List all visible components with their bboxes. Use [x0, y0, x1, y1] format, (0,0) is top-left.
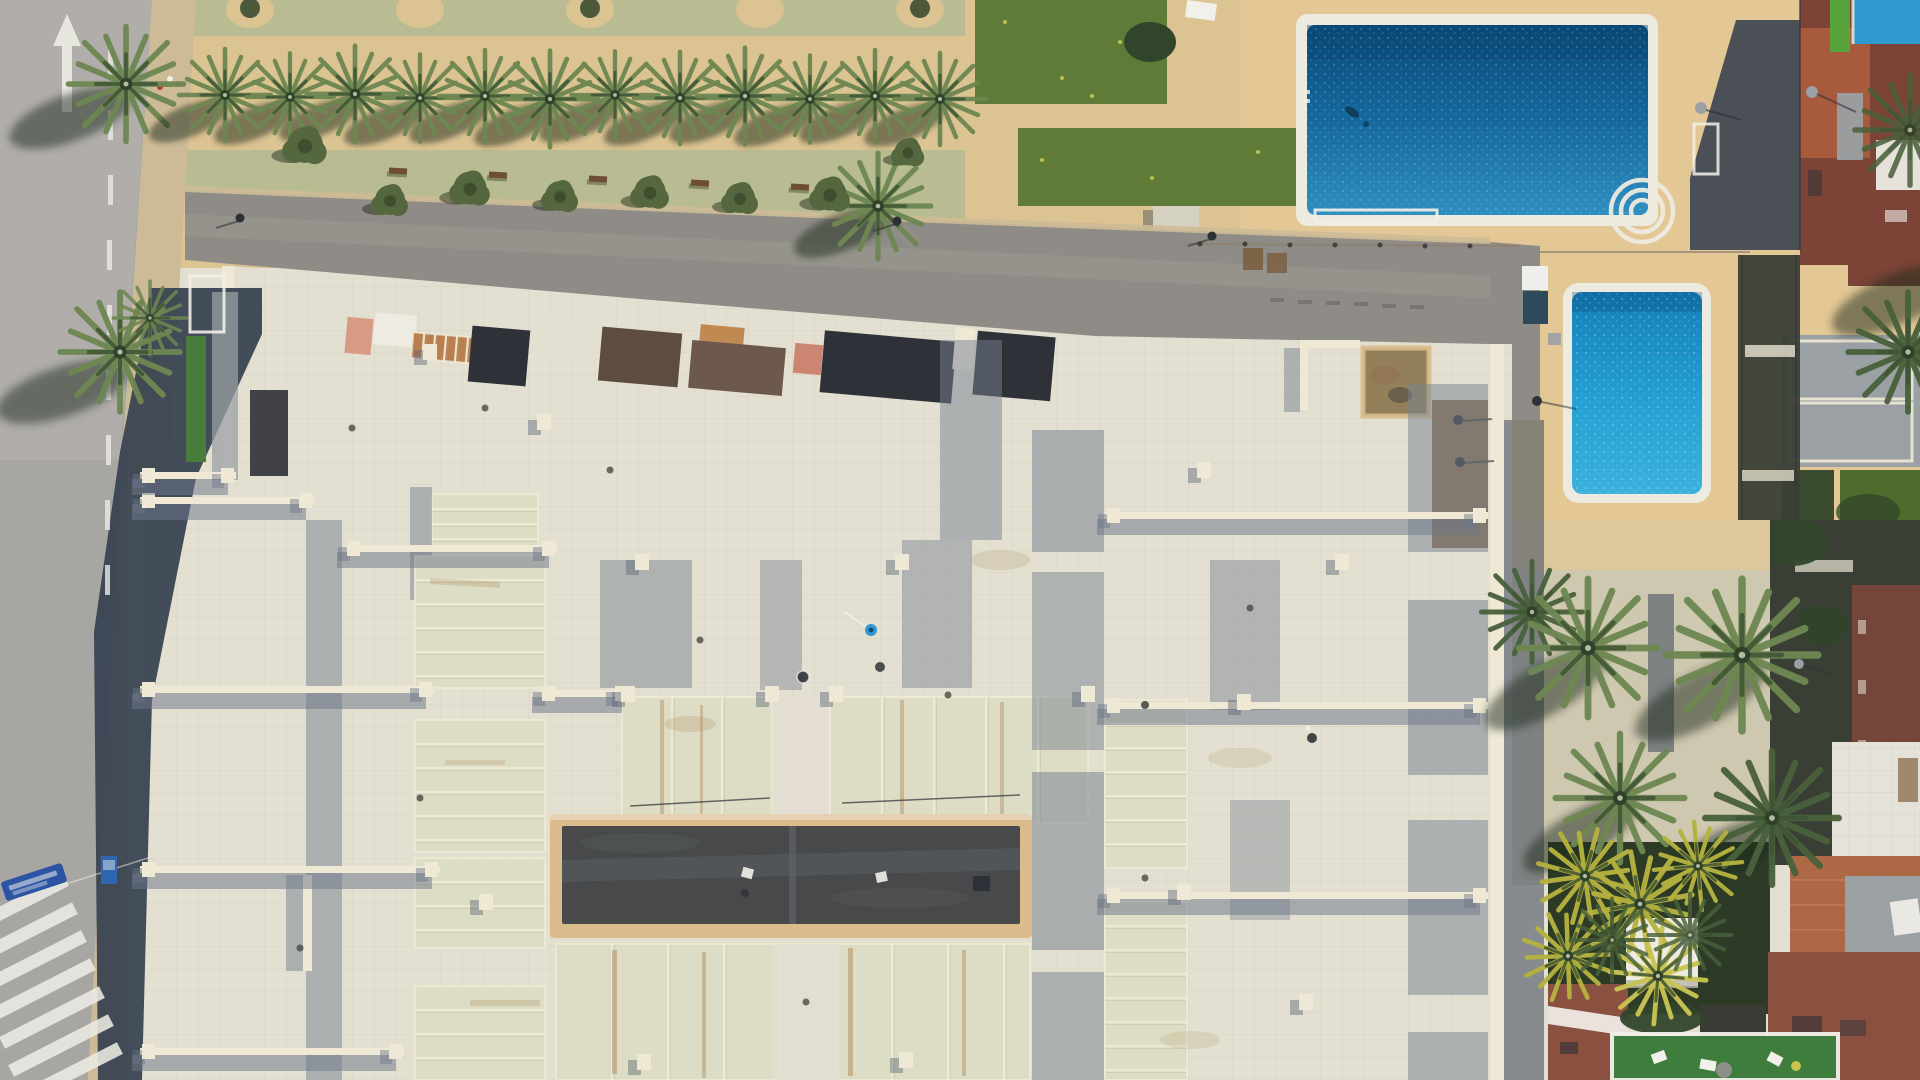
skylight-drain — [741, 889, 749, 897]
rail-post-6 — [1423, 244, 1428, 249]
roof-ac-unit — [1307, 733, 1317, 743]
divider-7 — [1097, 508, 1488, 535]
wall-shadow — [132, 693, 426, 709]
ne-corner-parapet-v — [1300, 340, 1308, 410]
cap — [542, 686, 555, 701]
divider-4 — [132, 862, 440, 889]
cap — [142, 682, 155, 697]
skylight-south-gap — [772, 944, 840, 1080]
roof-drain-8 — [417, 795, 424, 802]
entrance-green-strip — [186, 336, 206, 462]
ne-corner-shadow — [1284, 348, 1300, 412]
inner-court-mottle-1 — [1370, 365, 1400, 385]
divider-3 — [132, 682, 434, 709]
park-bench — [487, 171, 507, 181]
roof-drain-2 — [349, 425, 356, 432]
drain-grate-2 — [1267, 253, 1287, 273]
street-lamp-head-1 — [1695, 102, 1707, 114]
park-bench — [689, 179, 709, 189]
big-pool-sparkle — [1307, 25, 1648, 215]
flower-4 — [1040, 158, 1044, 162]
center-slab-1 — [600, 560, 692, 688]
dark-skylight-mottle-3 — [830, 888, 970, 908]
facade-east-shadow — [1504, 420, 1544, 1080]
roof-stain-2 — [1208, 748, 1272, 768]
cap — [1473, 888, 1486, 903]
skylight-band-2-panel — [415, 720, 545, 852]
divider-10 — [132, 468, 236, 495]
roof-drain-1 — [482, 405, 489, 412]
wall — [140, 1048, 404, 1055]
lane-dash-3 — [108, 175, 113, 205]
salmon-wall — [793, 343, 824, 375]
wall — [140, 686, 434, 693]
tire-mark-3 — [1326, 301, 1340, 305]
aerial-photograph — [0, 0, 1920, 1080]
col-e-slab-1 — [1032, 430, 1104, 552]
roof-figure — [1306, 726, 1311, 731]
pool-ladder-1 — [1303, 90, 1310, 94]
terrace-table — [1716, 1062, 1732, 1078]
lane-dash-4 — [107, 240, 112, 270]
roof-drain-10 — [803, 999, 810, 1006]
neighbor-grass-strip — [1830, 0, 1850, 52]
tire-mark-5 — [1382, 304, 1396, 308]
divider-9 — [1097, 888, 1488, 915]
skylight-central-1 — [622, 697, 772, 823]
cap — [142, 468, 155, 483]
col-f-slab-4 — [1408, 1032, 1488, 1080]
cap — [221, 468, 234, 483]
se-bushes — [1620, 1002, 1704, 1034]
dark-skylight-mottle-2 — [580, 833, 700, 853]
park-bench — [387, 167, 407, 177]
deck-drain-box — [1548, 333, 1561, 345]
rust-c3 — [900, 700, 904, 822]
stair-box-salmon — [344, 317, 373, 355]
ne-corner-parapet-h — [1300, 340, 1360, 348]
cap — [1473, 698, 1486, 713]
skylight-band-2 — [415, 720, 545, 852]
rust-b2 — [445, 760, 505, 765]
pedestrian-white — [167, 76, 173, 82]
wall — [1105, 892, 1488, 899]
cap — [1473, 508, 1486, 523]
rust-s1 — [612, 950, 617, 1074]
flower-7 — [1090, 94, 1094, 98]
roof-drain-5 — [945, 692, 952, 699]
palm-tree-sidewalk — [113, 281, 187, 355]
wall-shadow — [1097, 519, 1480, 535]
second-pool-sparkle — [1572, 292, 1702, 494]
wall-shadow — [132, 504, 306, 520]
wall-shadow — [1097, 899, 1480, 915]
broom-head-center — [869, 628, 874, 633]
dark-skylight-divider — [789, 826, 796, 924]
vwall-col1 — [303, 875, 312, 971]
brown-roof-2 — [688, 340, 786, 396]
dark-palm — [1649, 894, 1732, 977]
ac-unit — [1522, 266, 1548, 290]
col-f-slab-2 — [1408, 600, 1488, 775]
roof-stain-1 — [970, 550, 1030, 570]
rust-b3 — [470, 1000, 540, 1006]
shadow-slab-a — [940, 340, 1002, 540]
skylight-central-1-panel — [622, 697, 772, 823]
palm-tree-sidewalk — [60, 292, 180, 412]
wall — [140, 866, 440, 873]
rail-post-2 — [1243, 242, 1248, 247]
flower-3 — [1118, 40, 1122, 44]
col-f-skylight-1 — [1105, 700, 1187, 868]
neighbor-pool-corner — [1853, 0, 1920, 44]
tire-mark-2 — [1298, 300, 1312, 304]
rust-s2 — [702, 952, 706, 1078]
flower-1 — [1003, 20, 1007, 24]
center-slab-2 — [760, 560, 802, 690]
rust-c1 — [660, 700, 664, 820]
col-f-skylight-1-panel — [1105, 700, 1187, 868]
roof-ac-unit-2 — [1141, 701, 1149, 709]
se-b2-window-2 — [1840, 1020, 1866, 1036]
scene-layers — [0, 0, 1920, 1080]
swimmer-dot — [1363, 121, 1369, 127]
tire-mark-6 — [1410, 305, 1424, 309]
divider-8 — [1097, 698, 1488, 725]
cap — [389, 1044, 402, 1059]
cap — [1107, 508, 1120, 523]
flower-6 — [1256, 150, 1260, 154]
roof-gap-white — [531, 317, 600, 359]
dark-skylight-frame-hl — [550, 814, 1032, 820]
rail-post-7 — [1468, 244, 1473, 249]
col-f-skylight-2 — [1105, 902, 1187, 1080]
palm-tree-row — [894, 53, 986, 145]
col-e-slab-3 — [1032, 772, 1104, 950]
wall — [345, 545, 557, 552]
street-lamp-head-2 — [1806, 86, 1818, 98]
roof-drain-3 — [607, 467, 614, 474]
screenshot-root — [0, 0, 1920, 1080]
lane-dash-8 — [105, 500, 110, 530]
wall-shadow — [337, 552, 549, 568]
dark-palm — [1571, 899, 1654, 982]
roof-stain-4 — [1160, 1031, 1220, 1049]
rail-post-4 — [1333, 243, 1338, 248]
palm-tree-courtyard — [1519, 579, 1657, 717]
stair-box-white — [373, 312, 418, 348]
cap — [299, 493, 312, 508]
wall — [140, 497, 314, 504]
lawn-hedge — [1124, 22, 1176, 62]
col-e-slab-4 — [1032, 972, 1104, 1080]
park-bench — [587, 175, 607, 185]
rail-post-3 — [1288, 243, 1293, 248]
rust-s3 — [848, 948, 853, 1076]
neighbor-awning — [1837, 93, 1863, 160]
roof-drain-4 — [697, 637, 704, 644]
courtyard-opening-2 — [820, 330, 957, 403]
neighbor-window-2 — [1808, 170, 1822, 196]
palm-tree-courtyard — [1556, 734, 1685, 863]
cap — [347, 541, 360, 556]
wall — [1105, 512, 1488, 519]
cap — [1107, 888, 1120, 903]
terrace-parasol — [1791, 1061, 1801, 1071]
rust-c4 — [1000, 702, 1004, 820]
flower-5 — [1150, 176, 1154, 180]
se-roof-clutter — [1890, 898, 1920, 936]
roof-drain-6 — [1247, 605, 1254, 612]
street-sign-face — [103, 860, 115, 870]
roof-drain-7 — [1142, 875, 1149, 882]
skylight-band-1-panel — [415, 556, 545, 688]
col-f-slab-5 — [1210, 560, 1280, 710]
solar-panel — [1523, 291, 1548, 324]
e-lamp-head — [1794, 659, 1804, 669]
divider-5 — [132, 1044, 404, 1071]
courtyard-opening-4 — [250, 390, 288, 476]
patio-clutter — [1898, 758, 1918, 802]
flower-2 — [1060, 76, 1064, 80]
vshadow-col1 — [306, 520, 342, 1080]
lawn-2 — [1018, 128, 1296, 206]
red-building-window — [1560, 1042, 1578, 1054]
skylight-walk-gap — [772, 697, 830, 823]
lane-dash-9 — [105, 565, 110, 595]
col-e-slab-2 — [1032, 572, 1104, 750]
wall-shadow — [132, 1055, 396, 1071]
alley-path-1 — [1745, 345, 1795, 357]
bollard-2 — [1532, 396, 1542, 406]
cap — [1107, 698, 1120, 713]
wall-shadow — [132, 873, 432, 889]
rust-s4 — [962, 950, 966, 1076]
skylight-box-dark — [973, 876, 990, 891]
park-bench — [789, 183, 809, 193]
tire-mark-1 — [1270, 298, 1284, 302]
divider-2 — [337, 541, 557, 568]
skylight-band-1 — [415, 556, 545, 688]
divider-1 — [132, 493, 314, 520]
drain-grate-1 — [1243, 248, 1263, 270]
se-b2-window-1 — [1792, 1016, 1822, 1034]
roof-object-dark — [875, 662, 885, 672]
cap — [419, 682, 432, 697]
roof-drain-9 — [297, 945, 304, 952]
lane-dash-7 — [106, 435, 111, 465]
neighbor-window-1 — [1885, 210, 1907, 222]
wall — [1105, 702, 1488, 709]
courtyard-opening-1 — [468, 326, 531, 387]
palm-tree-courtyard — [1666, 579, 1818, 731]
cap — [142, 493, 155, 508]
cap — [142, 862, 155, 877]
vwall-col1-shadow — [286, 875, 303, 971]
center-slab-3 — [902, 540, 972, 688]
tire-mark-4 — [1354, 302, 1368, 306]
pool-ladder-2 — [1303, 99, 1310, 103]
alley-path-2 — [1742, 470, 1794, 481]
cap — [425, 862, 438, 877]
m2-window-2 — [1858, 680, 1866, 694]
roof-stain-3 — [664, 716, 716, 732]
wall-shadow — [1097, 709, 1480, 725]
brown-roof-1 — [598, 327, 682, 388]
rail-post-5 — [1378, 243, 1383, 248]
cap — [542, 541, 555, 556]
m2-window-1 — [1858, 620, 1866, 634]
cap — [142, 1044, 155, 1059]
